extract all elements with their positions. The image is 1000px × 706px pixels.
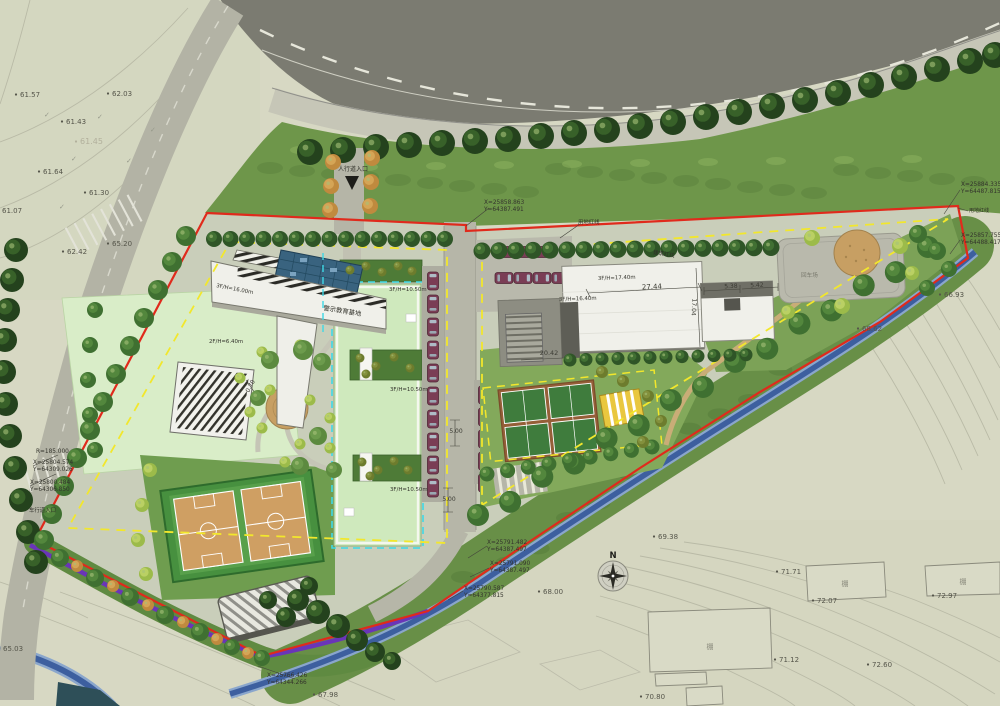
shed-label: 棚 — [960, 577, 967, 586]
coordinate-callout: Y=64377.815 — [463, 593, 504, 599]
elevation-labels-item: 62.42 — [67, 248, 87, 256]
survey-mark: ✓ — [150, 126, 156, 134]
car — [428, 341, 439, 359]
dimension-labels-item: 20.42 — [540, 349, 559, 357]
building-labels-item: 3F/H=10.50m — [390, 387, 428, 393]
coordinate-callout: X=25791.090 — [490, 561, 530, 567]
survey-mark: ✓ — [126, 157, 132, 165]
dimension-labels-item: 5.42 — [750, 282, 764, 290]
car — [533, 273, 551, 284]
elevation-labels-item: 65.03 — [3, 645, 23, 653]
survey-mark: ✓ — [59, 203, 65, 211]
car — [428, 272, 439, 290]
car — [428, 387, 439, 405]
car — [428, 433, 439, 451]
shed-label: 棚 — [842, 579, 849, 588]
coordinate-callout: X=25884.335 — [961, 182, 1000, 188]
stair-core — [560, 302, 580, 359]
coordinate-callout: X=25790.587 — [464, 586, 504, 592]
vehicle-entrance-label: 车行道入口 — [29, 506, 56, 514]
garage-ramp — [505, 313, 543, 362]
elevation-labels-item: 69.38 — [658, 533, 678, 541]
elevation-labels-item: 70.80 — [645, 693, 665, 701]
pedestrian-entrance-label: 人行道入口 — [338, 165, 368, 173]
elevation-labels-item: 66.93 — [944, 291, 964, 299]
coordinate-callout: X=25766.426 — [267, 673, 307, 679]
coordinate-callout: Y=64306.850 — [29, 487, 70, 493]
basketball-court — [160, 470, 323, 582]
car — [495, 273, 513, 284]
survey-mark: ✓ — [44, 111, 50, 119]
dimension-labels-item: 5.38 — [724, 283, 738, 291]
shed-label: 棚 — [707, 642, 714, 651]
coordinate-callout: X=25791.482 — [487, 540, 527, 546]
car — [428, 479, 439, 497]
building-labels-item: 3F/H=10.50m — [389, 287, 427, 293]
elevation-labels-item: 65.20 — [112, 240, 132, 248]
coordinate-callout: Y=64488.417 — [960, 240, 1000, 246]
survey-mark: ✓ — [71, 155, 77, 163]
coordinate-callout: Y=64387.497 — [489, 568, 530, 574]
survey-mark: ✓ — [97, 113, 103, 121]
elevation-labels-item: 72.97 — [937, 592, 957, 600]
elevation-labels-item: 68.62 — [862, 325, 882, 333]
elevation-labels-item: 61.57 — [20, 91, 40, 99]
car — [428, 295, 439, 313]
elevation-labels-item: 61.64 — [43, 168, 64, 176]
coordinate-callout: Y=64309.026 — [32, 467, 73, 473]
elevation-labels-item: 72.07 — [817, 597, 837, 605]
car — [514, 273, 532, 284]
elevation-labels-item: 61.07 — [2, 207, 22, 215]
elevation-labels-item: 61.45 — [80, 137, 103, 146]
turnaround-label: 回车场 — [801, 271, 818, 279]
coordinate-callout: Y=64387.491 — [483, 207, 524, 213]
coordinate-callout: X=25857.755 — [961, 233, 1000, 239]
elevation-labels-item: 68.00 — [543, 588, 563, 596]
elevation-labels-item: 71.71 — [781, 568, 801, 576]
car — [428, 364, 439, 382]
dimension-labels-item: 17.04 — [690, 298, 698, 316]
elevation-labels-item: 72.60 — [872, 661, 892, 669]
redline-label-right: 用地红线 — [969, 207, 989, 214]
dimension-labels-item: 27.44 — [642, 282, 663, 291]
car — [428, 318, 439, 336]
coordinate-callout: X=25858.863 — [484, 200, 524, 206]
building-labels-item: 2F/H=6.40m — [209, 339, 243, 345]
coordinate-callout: R=185.000 — [36, 449, 69, 455]
site-plan-drawing: 棚 棚 棚 — [0, 0, 1000, 706]
coordinate-callout: X=25804.574 — [33, 460, 73, 466]
coordinate-callout: Y=64344.266 — [266, 680, 307, 686]
circular-plaza — [834, 230, 880, 276]
redline-label-top: 用地红线 — [578, 218, 600, 226]
elevation-labels-item: 67.98 — [318, 691, 338, 699]
site-plan-page: 棚 棚 棚 — [0, 0, 1000, 706]
coordinate-callout: Y=64487.815 — [960, 189, 1000, 195]
coordinate-callout: Y=64387.497 — [486, 547, 527, 553]
building-labels-item: 3F/H=10.50m — [390, 487, 428, 493]
elevation-labels-item: 62.03 — [112, 90, 132, 98]
dimension-labels-item: 5.00 — [449, 428, 463, 435]
elevation-labels-item: 61.30 — [89, 189, 109, 197]
dimension-labels-item: 5.00 — [442, 496, 456, 503]
elevation-labels-item: 71.12 — [779, 656, 799, 664]
tennis-courts — [498, 380, 601, 462]
car — [428, 456, 439, 474]
coordinate-callout: X=25800.484 — [30, 480, 70, 486]
elevation-labels-item: 61.43 — [66, 118, 86, 126]
car — [428, 410, 439, 428]
north-label: N — [609, 551, 616, 561]
